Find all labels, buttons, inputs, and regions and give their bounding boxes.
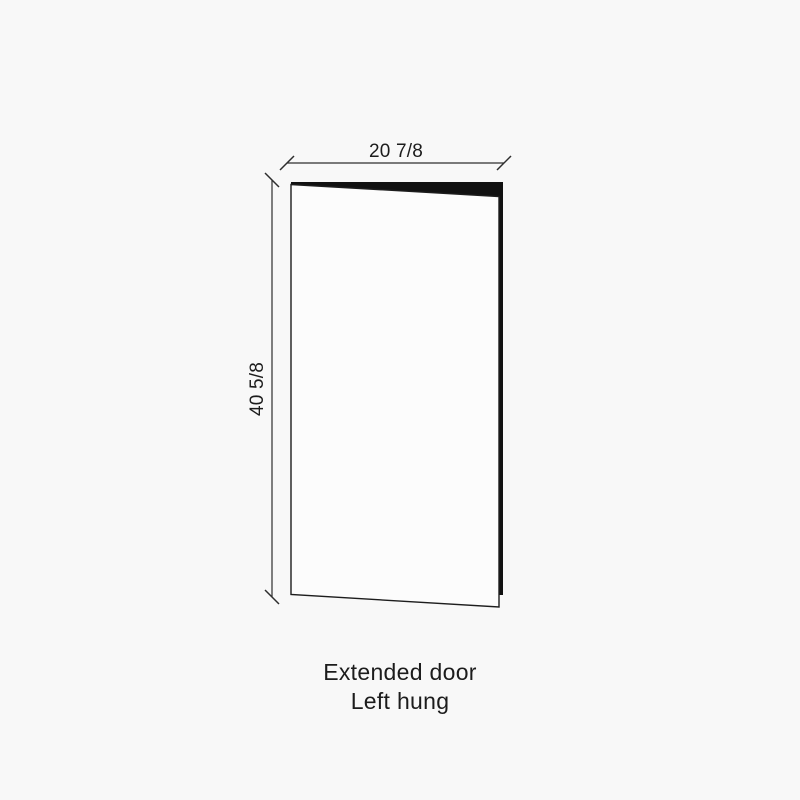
- caption-line-1: Extended door: [323, 659, 477, 685]
- width-dimension: 20 7/8: [280, 141, 511, 170]
- door-diagram-svg: 20 7/8 40 5/8 Extended door Left hung: [0, 0, 800, 800]
- height-dimension-label: 40 5/8: [247, 362, 268, 416]
- door-spec-figure: 20 7/8 40 5/8 Extended door Left hung: [0, 0, 800, 800]
- door-front-panel: [291, 185, 499, 608]
- width-dimension-label: 20 7/8: [369, 141, 423, 162]
- caption: Extended door Left hung: [323, 659, 477, 714]
- caption-line-2: Left hung: [351, 688, 450, 714]
- height-dimension: 40 5/8: [247, 173, 279, 604]
